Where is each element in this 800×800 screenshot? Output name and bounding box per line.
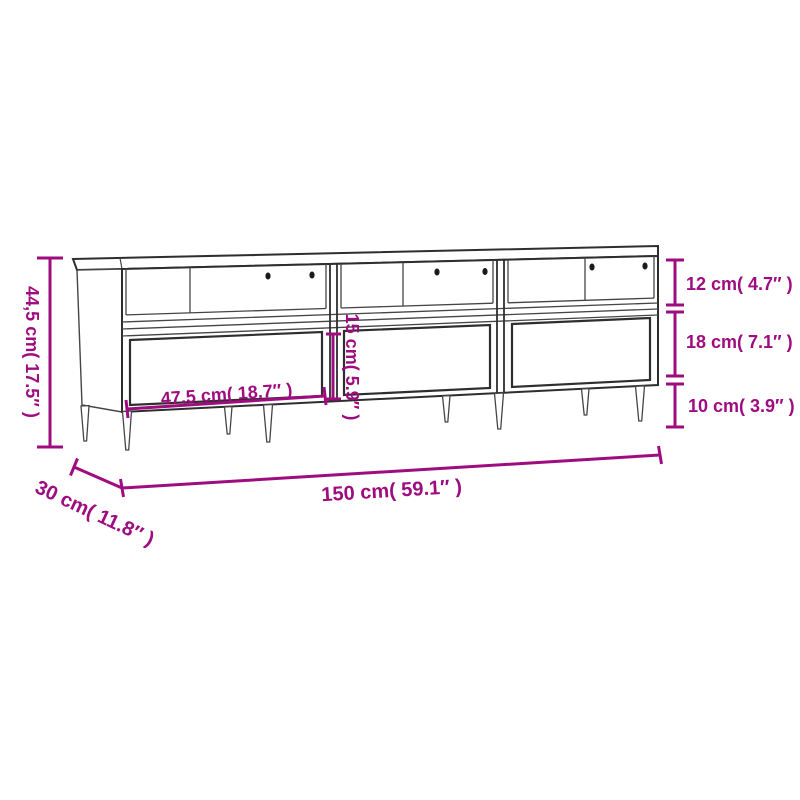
leg-back: [225, 407, 233, 434]
total-width-label: 150 cm( 59.1″ ): [321, 476, 463, 507]
dimension-total-depth-line: [71, 459, 123, 489]
leg-front: [636, 386, 645, 421]
cable-hole-icon: [434, 269, 439, 276]
dimension-top-shelf-height-line: [666, 260, 684, 305]
leg-front: [264, 405, 273, 443]
cable-hole-icon: [309, 272, 314, 279]
drawer-front-middle: [344, 325, 490, 395]
total-height-label: 44,5 cm( 17.5″ ): [22, 286, 42, 418]
diagram-canvas: 44,5 cm( 17.5″ ) 12 cm( 4.7″ ) 18 cm( 7.…: [0, 0, 800, 800]
leg-back: [81, 406, 89, 441]
cable-hole-icon: [589, 264, 594, 271]
cable-hole-icon: [482, 268, 487, 275]
drawer-section-height-label: 18 cm( 7.1″ ): [686, 332, 793, 352]
leg-height-label: 10 cm( 3.9″ ): [688, 396, 795, 416]
leg-back: [582, 389, 590, 415]
cable-hole-icon: [265, 273, 270, 280]
drawer-front-height-label: 15 cm( 5.9″ ): [342, 314, 362, 421]
cable-hole-icon: [642, 263, 647, 270]
leg-front: [495, 393, 504, 429]
tv-stand-drawing: [73, 246, 658, 450]
cabinet-left-side-panel: [77, 269, 122, 412]
drawer-front-right: [512, 318, 650, 387]
leg-back: [443, 396, 451, 422]
top-shelf-height-label: 12 cm( 4.7″ ): [686, 274, 793, 294]
dimension-leg-height-line: [666, 384, 684, 427]
product-dimension-diagram: 44,5 cm( 17.5″ ) 12 cm( 4.7″ ) 18 cm( 7.…: [0, 0, 800, 800]
dimension-drawer-section-height-line: [666, 312, 684, 376]
